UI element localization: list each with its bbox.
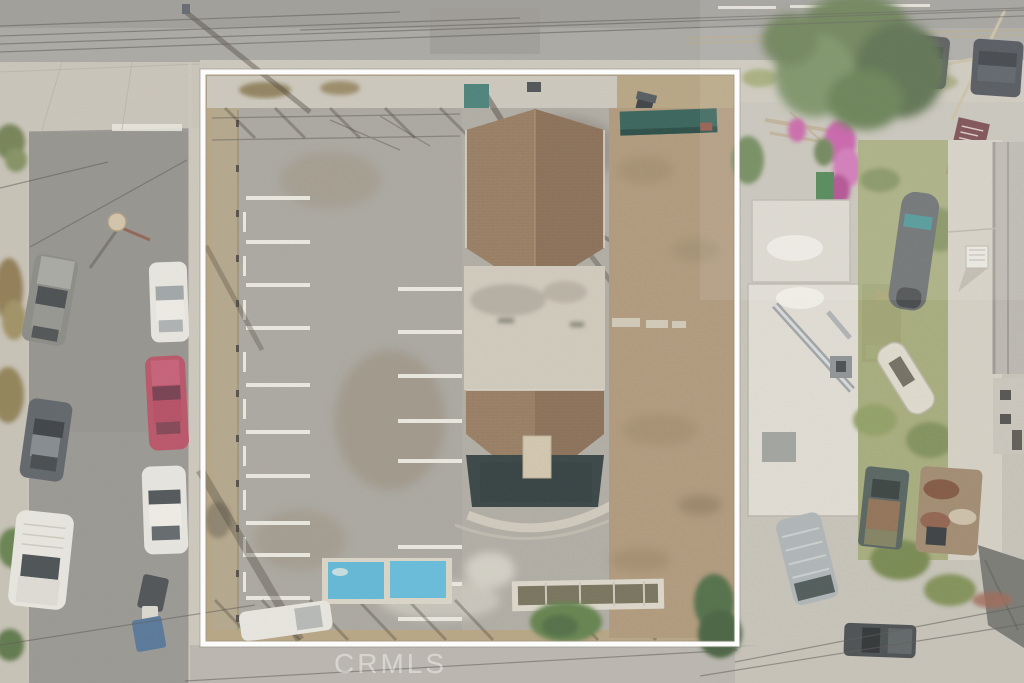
photo-grain	[0, 0, 1024, 683]
watermark-text: CRMLS	[334, 648, 447, 680]
aerial-photo: CRMLS	[0, 0, 1024, 683]
aerial-photo-canvas	[0, 0, 1024, 683]
